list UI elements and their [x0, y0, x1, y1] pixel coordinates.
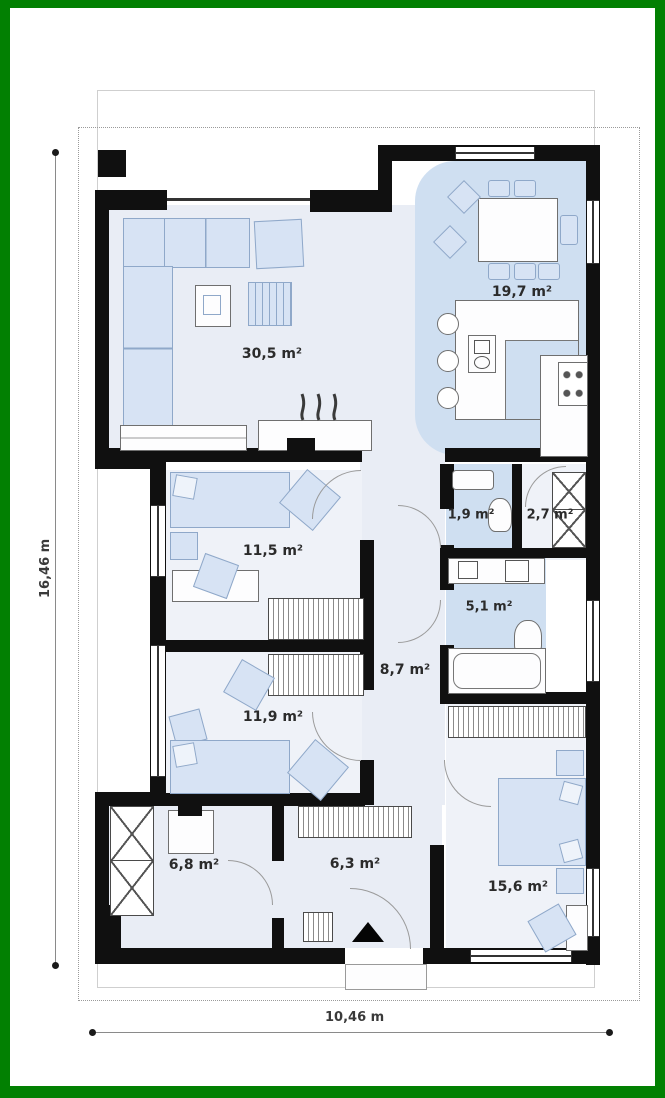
sideboard	[258, 420, 372, 451]
sink-basin	[474, 340, 490, 354]
entrance-arrow-icon	[352, 922, 384, 942]
room-area-label: 5,1 m²	[466, 600, 513, 615]
tv-bench	[120, 425, 247, 451]
wall	[166, 640, 362, 652]
fireplace	[287, 438, 315, 452]
sofa	[123, 218, 250, 268]
double-bed	[498, 778, 586, 866]
bathtub	[448, 648, 546, 694]
window	[455, 147, 535, 159]
wall	[440, 548, 586, 558]
wardrobe	[298, 806, 412, 838]
wall	[272, 806, 284, 861]
pillow	[559, 781, 583, 805]
wall	[272, 918, 284, 950]
counter	[178, 798, 202, 816]
bar-stool	[437, 350, 459, 372]
frame-border-right	[655, 0, 665, 1098]
room-area-label: 6,3 m²	[330, 856, 380, 872]
wall	[512, 464, 522, 550]
sink-basin	[474, 356, 490, 369]
nightstand	[556, 868, 584, 894]
wall	[586, 145, 600, 965]
wardrobe	[268, 598, 364, 640]
dimension-label-width: 10,46 m	[325, 1010, 384, 1025]
washing-machine	[505, 560, 529, 582]
entrance-door-opening	[345, 948, 423, 964]
kitchen-sink	[468, 335, 496, 373]
wall	[378, 145, 392, 212]
dining-armchair	[560, 215, 578, 245]
room-area-label: 6,8 m²	[169, 857, 219, 873]
wardrobe	[268, 654, 364, 696]
window	[470, 950, 572, 962]
window	[151, 505, 165, 577]
sofa	[123, 266, 173, 436]
dining-chair	[538, 263, 560, 280]
dimension-endpoint	[52, 962, 59, 969]
pillow	[172, 474, 197, 499]
floor-plan-canvas: 16,46 m 10,46 m	[0, 0, 665, 1098]
dimension-line-vertical	[55, 152, 57, 968]
dimension-endpoint	[89, 1029, 96, 1036]
tall-cabinet	[110, 806, 154, 862]
nightstand	[556, 750, 584, 776]
dining-chair	[488, 180, 510, 197]
room-area-label: 19,7 m²	[492, 284, 552, 300]
dimension-label-height: 16,46 m	[38, 539, 53, 598]
frame-border-left	[0, 0, 10, 1098]
room-area-label: 11,9 m²	[243, 709, 303, 725]
dimension-line-horizontal	[92, 1032, 612, 1034]
wall	[95, 800, 109, 964]
side-table	[248, 282, 292, 326]
coffee-table	[195, 285, 231, 327]
room-area-label: 2,7 m²	[527, 508, 574, 523]
floor-grate	[303, 912, 333, 942]
window	[151, 645, 165, 777]
window	[587, 200, 599, 264]
dimension-endpoint	[52, 149, 59, 156]
dimension-endpoint	[606, 1029, 613, 1036]
window	[167, 198, 313, 201]
stove	[558, 362, 588, 406]
dining-chair	[514, 263, 536, 280]
wall	[95, 190, 109, 465]
frame-border-bottom	[0, 1086, 665, 1098]
bed	[170, 740, 290, 794]
wall	[98, 150, 126, 177]
wall	[95, 190, 167, 210]
bar-stool	[437, 313, 459, 335]
room-area-label: 15,6 m²	[488, 879, 548, 895]
room-area-label: 1,9 m²	[448, 508, 495, 523]
tall-cabinet	[110, 860, 154, 916]
wall	[430, 845, 444, 950]
room-area-label: 11,5 m²	[243, 543, 303, 559]
dining-table	[478, 198, 558, 262]
pillow	[172, 742, 197, 767]
wardrobe	[448, 706, 586, 738]
pillow	[559, 839, 583, 863]
room-area-label: 30,5 m²	[242, 346, 302, 362]
dining-chair	[514, 180, 536, 197]
fireplace-flames-icon	[295, 388, 347, 422]
bar-stool	[437, 387, 459, 409]
window	[587, 868, 599, 937]
bathtub-basin	[453, 653, 541, 689]
window	[587, 600, 599, 682]
entry-step	[345, 964, 427, 990]
armchair	[254, 219, 304, 269]
frame-border-top	[0, 0, 665, 8]
dining-chair	[488, 263, 510, 280]
bathroom-sink	[458, 561, 478, 579]
bed	[170, 472, 290, 528]
coffee-table-top	[203, 295, 221, 315]
washer-dryer	[168, 810, 214, 854]
nightstand	[170, 532, 198, 560]
washbasin	[452, 470, 494, 490]
room-area-label: 8,7 m²	[380, 662, 430, 678]
